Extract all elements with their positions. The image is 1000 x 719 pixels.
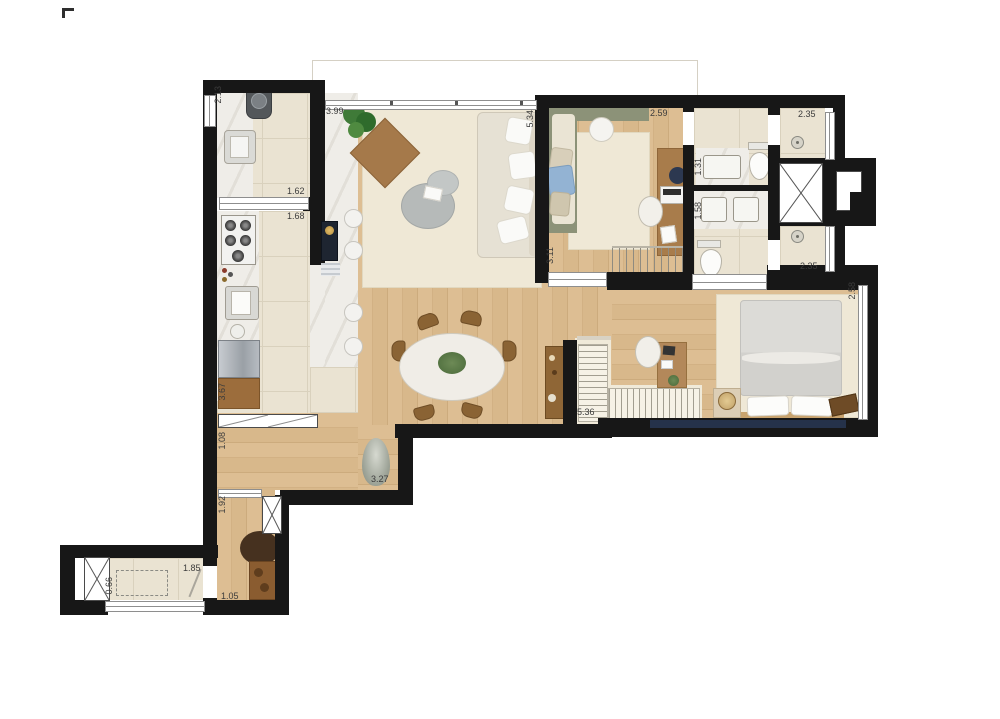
toilet-tank [748,142,770,150]
dim-corridor-length: 1.92 [218,496,227,514]
burner-icon [225,235,236,246]
bed-duvet [740,300,842,396]
print-mark [62,8,65,18]
burner-icon [225,220,236,231]
window-tick [520,101,523,105]
window-bedroom [858,285,868,420]
window-tick [455,101,458,105]
dressing-table-item [661,360,673,369]
bar-cabinet-glassware [549,355,555,361]
dim-laundry-width: 0.66 [105,577,114,595]
shower-drain-icon [796,141,799,144]
dim-living-depth: 5.34 [526,110,535,128]
dim-office-width: 2.59 [650,109,668,118]
wall [690,95,845,108]
wall [535,95,697,108]
dim-hall-width: 1.08 [218,432,227,450]
wall [60,600,108,615]
floor-plant [348,122,364,138]
bed-pillow [747,395,790,416]
dim-shower1-width: 2.35 [798,110,816,119]
throw-pillow [507,150,537,180]
refrigerator [218,340,260,378]
dim-shower2-width: 2.35 [800,262,818,271]
dining-chair [503,341,517,362]
entry-rug [240,531,280,565]
dim-kitchen-length: 3.67 [218,383,227,401]
bath2-sink [701,197,727,222]
desk-monitor-screen [663,189,681,195]
bar-stool [344,209,363,228]
window-navy-band [650,420,846,428]
window-living [325,100,537,110]
table-lamp [718,392,736,410]
pouf [589,117,614,142]
bar-stool [344,337,363,356]
bar-stool [344,241,363,260]
toilet-tank [697,240,721,248]
washing-machine-drum [251,93,267,109]
bath2-sink [733,197,759,222]
window-tick [390,101,393,105]
dim-entry-width: 1.05 [221,592,239,601]
wall [280,490,413,505]
louver-window [218,414,318,428]
wall [395,424,612,438]
console-decor [260,583,269,592]
spice-jar [222,277,227,282]
dim-living-width: 3.27 [371,475,389,484]
duct-shaft-notch [850,192,862,211]
dim-bath2-width: 1.58 [694,202,703,220]
spice-jar [222,268,227,273]
table-centerpiece [438,352,466,374]
closet-hangers [608,388,700,422]
plate [230,324,245,339]
bed-duvet-fold [742,352,840,364]
burner-icon [240,235,251,246]
entry-door [262,496,282,534]
console-table [249,561,277,600]
dim-bedroom-depth: 2.58 [848,282,857,300]
burner-icon [240,220,251,231]
bath1-sink [703,155,741,179]
window-laundry [105,601,205,612]
kitchen-floor-entry [310,367,358,413]
tv-panel-decor [325,226,334,235]
window [825,112,835,160]
daybed-pillow [549,191,571,217]
island-shelf [321,263,340,276]
floor-plan: 2.13 3.99 1.62 1.68 5.34 2.59 2.35 1.31 … [0,0,1000,719]
dressing-table-plant [668,375,679,386]
throw-pillow [503,184,536,215]
bath1-door [683,112,694,145]
dim-kitchen-passage: 3.99 [326,107,344,116]
island-counter [310,265,325,367]
console-decor [254,568,263,577]
desk-tablet [660,225,677,244]
shower1-door [768,115,780,145]
shower2-door [768,240,780,270]
office-chair [638,196,663,227]
dressing-table-item [663,345,676,355]
bar-cabinet-glassware [552,370,557,375]
shower-drain-icon [796,235,799,238]
dim-closet-length: 5.36 [577,408,595,417]
office-rug [568,132,650,250]
bed-pillow [791,395,834,416]
duct-shaft [779,163,823,223]
dim-service-width: 2.13 [214,86,223,104]
wall [607,272,692,290]
dim-service-length: 1.62 [287,187,305,196]
wall [203,80,217,435]
bar-cabinet-glassware [548,394,556,402]
dim-laundry-length: 1.85 [183,564,201,573]
closet-partition [577,336,611,340]
dim-bath1-width: 1.31 [694,158,703,176]
bar-stool [344,303,363,322]
bath2-door [692,274,767,290]
kitchen-sink-basin [231,291,251,315]
service-sink-basin [230,136,249,158]
spice-jar [228,272,233,277]
office-door [548,272,607,287]
pass-through-window [219,197,309,210]
dim-kitchen-width: 1.68 [287,212,305,221]
dressing-chair [635,336,661,368]
laundry-door-opening [203,566,217,598]
window [825,226,835,272]
dim-office-depth: 3.11 [546,247,555,264]
equipment-outline [116,570,168,596]
wall [563,340,577,430]
burner-icon [232,250,244,262]
